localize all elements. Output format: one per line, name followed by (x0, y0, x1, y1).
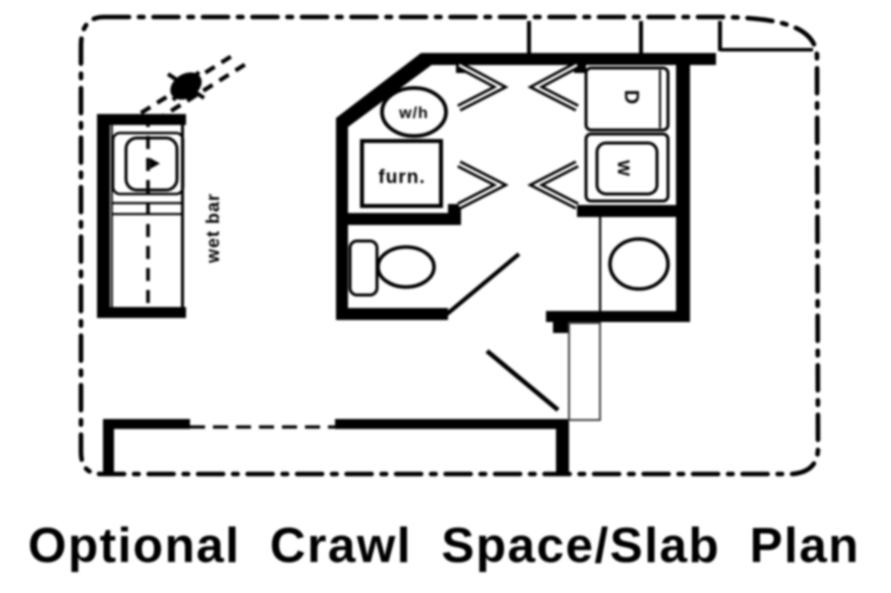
svg-text:w/h: w/h (398, 105, 429, 122)
svg-text:wet bar: wet bar (203, 193, 223, 264)
svg-text:D: D (620, 90, 642, 104)
svg-text:W: W (614, 160, 633, 177)
svg-text:furn.: furn. (378, 167, 425, 188)
svg-text:Optional Crawl Space/Slab Plan: Optional Crawl Space/Slab Plan (28, 519, 860, 573)
